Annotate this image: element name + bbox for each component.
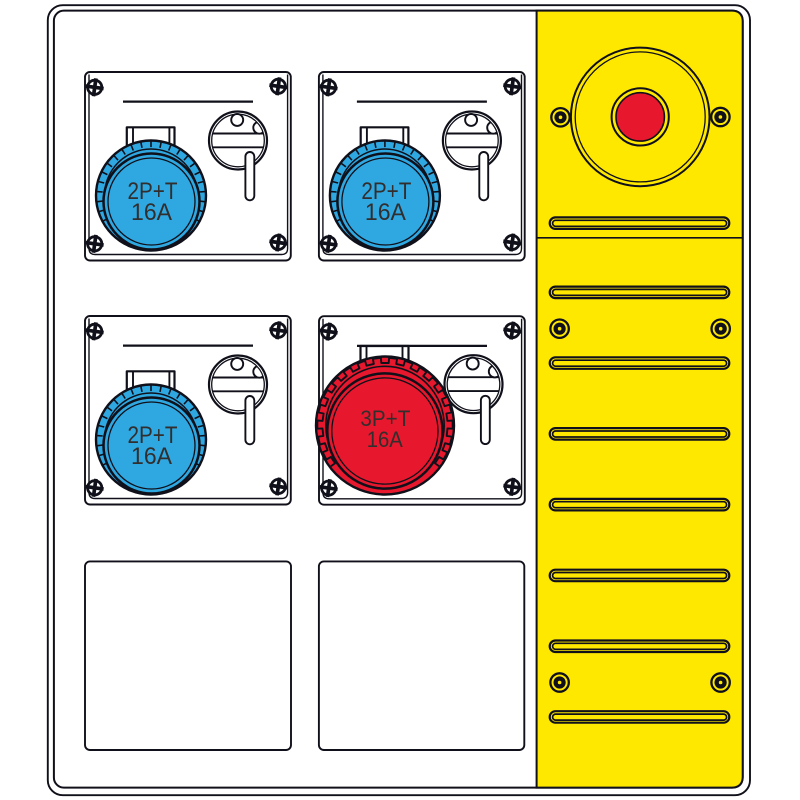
svg-text:16A: 16A bbox=[131, 199, 172, 226]
svg-text:16A: 16A bbox=[367, 427, 403, 452]
svg-text:16A: 16A bbox=[131, 443, 172, 470]
svg-text:16A: 16A bbox=[365, 199, 406, 226]
